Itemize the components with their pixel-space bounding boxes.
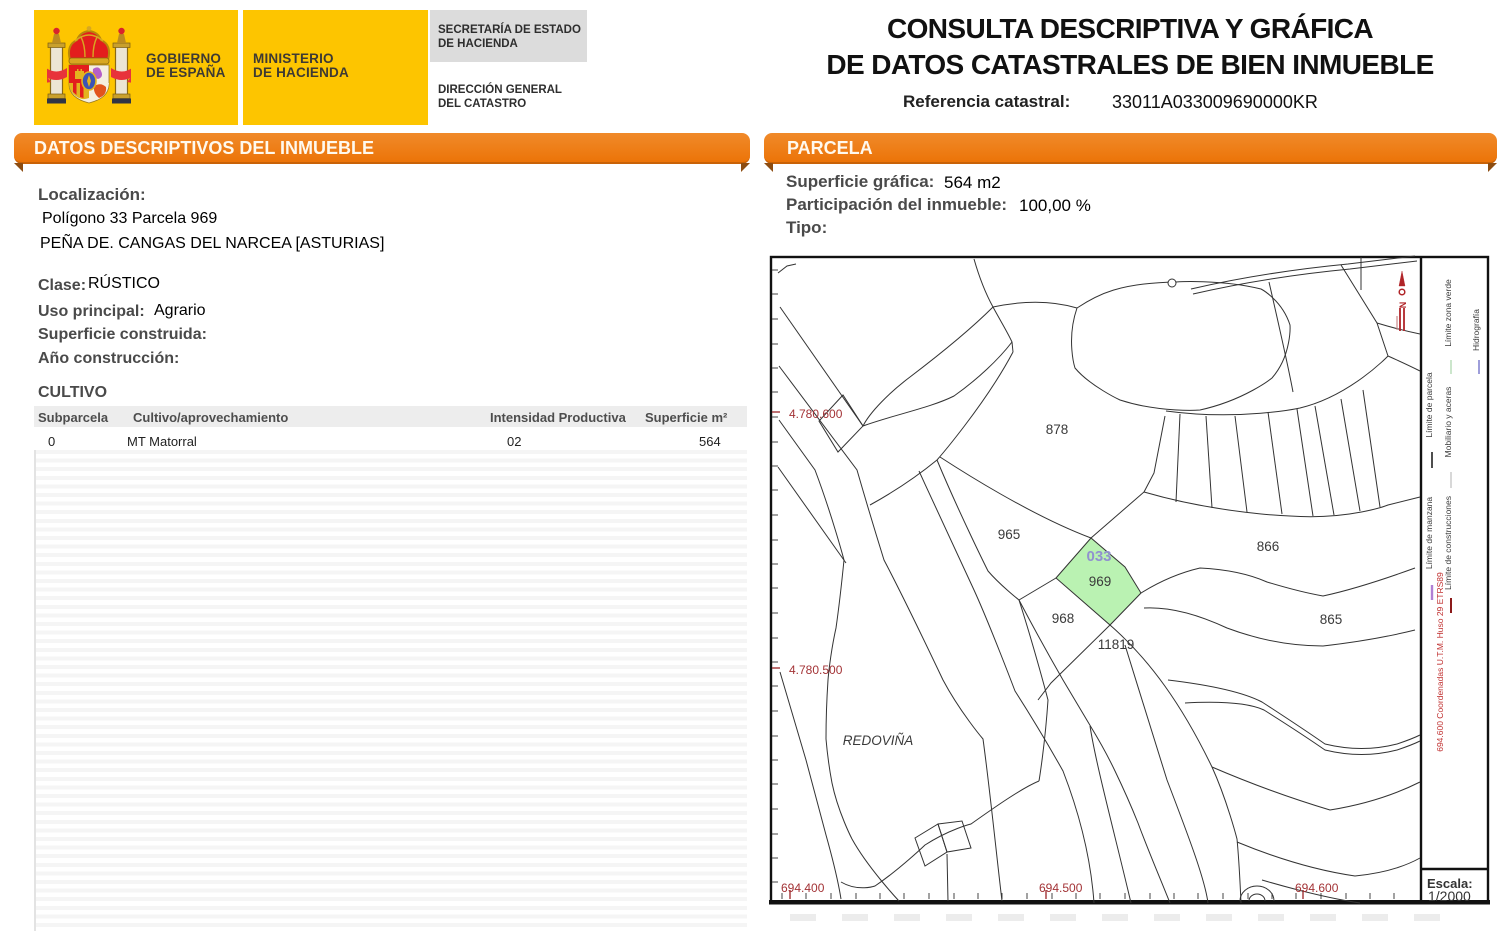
svg-text:965: 965 — [998, 527, 1021, 542]
svg-text:969: 969 — [1089, 574, 1112, 589]
svg-text:694.400: 694.400 — [781, 881, 825, 895]
svg-text:11819: 11819 — [1098, 637, 1135, 652]
svg-text:Mobiliario y aceras: Mobiliario y aceras — [1443, 387, 1453, 458]
svg-text:694.600 Coordenadas U.T.M. Hus: 694.600 Coordenadas U.T.M. Huso 29 ETRS8… — [1435, 572, 1445, 752]
svg-text:033: 033 — [1086, 548, 1111, 565]
svg-text:Hidrografía: Hidrografía — [1471, 309, 1481, 351]
svg-text:REDOVIÑA: REDOVIÑA — [843, 733, 914, 748]
svg-text:4.780.500: 4.780.500 — [789, 663, 843, 677]
svg-text:N: N — [1398, 302, 1408, 309]
svg-text:865: 865 — [1320, 612, 1343, 627]
svg-text:Límite zona verde: Límite zona verde — [1443, 279, 1453, 347]
svg-text:694.500: 694.500 — [1039, 881, 1083, 895]
svg-text:694.600: 694.600 — [1295, 881, 1339, 895]
svg-text:4.780.600: 4.780.600 — [789, 407, 843, 421]
svg-text:1/2000: 1/2000 — [1428, 888, 1471, 904]
svg-text:Límite de manzana: Límite de manzana — [1424, 497, 1434, 570]
svg-text:Límite de parcela: Límite de parcela — [1424, 372, 1434, 437]
svg-text:878: 878 — [1046, 422, 1069, 437]
svg-text:866: 866 — [1257, 539, 1280, 554]
svg-text:968: 968 — [1052, 611, 1075, 626]
